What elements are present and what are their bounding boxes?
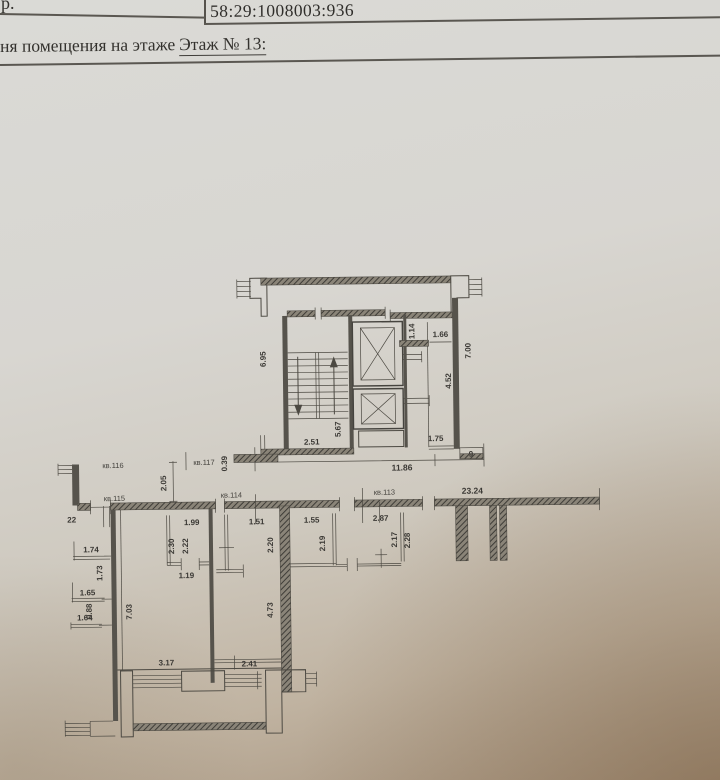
stair-down-arrow [298, 357, 299, 410]
dim-wall-mark: 22 [67, 515, 77, 524]
corridor-top-wall [237, 276, 483, 324]
dim-core-bottom-total: 11.86 [392, 462, 413, 472]
facade-wall: 22 [58, 457, 600, 528]
dim-core-right: 7.00 [464, 342, 473, 358]
dim-h220: 2.20 [266, 537, 275, 553]
balconies [64, 655, 317, 738]
dim-lift-room: 1.66 [433, 330, 449, 339]
floor-plan: 6.95 2.51 5.67 1.14 1.66 7.00 4.52 1.75 … [0, 0, 720, 780]
left-exterior-wall [111, 510, 118, 670]
dim-small-nine: 9 [469, 450, 474, 459]
dim-room-d-w: 2.87 [373, 514, 389, 523]
dim-core-bottom-right: 1.75 [428, 434, 444, 443]
dim-total-width: 23.24 [462, 486, 484, 496]
dim-bottom241: 2.41 [242, 659, 258, 668]
shaft-service-box [359, 430, 404, 447]
document-page: р. 58:29:1008003:936 ня помещения на эта… [0, 0, 720, 780]
dim-bay165: 1.65 [80, 588, 96, 597]
balcony-bottom-wall [133, 722, 266, 731]
label-kv114: кв.114 [221, 490, 242, 499]
dim-w119: 1.19 [179, 571, 195, 580]
dim-bottom317: 3.17 [159, 658, 175, 667]
dim-room-c-w: 1.55 [304, 516, 320, 525]
dim-gap: 2.05 [159, 475, 168, 491]
elevator-shaft-lower [353, 388, 429, 429]
dim-h230: 2.30 [167, 538, 176, 554]
apartment-walls: 1.99 1.51 1.55 2.87 2.30 2.22 2.20 2.19 … [63, 503, 510, 737]
dim-stair-depth: 5.67 [333, 421, 342, 437]
dim-stair-side: 6.95 [259, 351, 268, 367]
stair-up-arrow [334, 362, 335, 414]
label-kv117: кв.117 [193, 458, 214, 467]
dim-stair-width: 2.51 [304, 437, 320, 446]
stair-core: 6.95 2.51 5.67 1.14 1.66 7.00 4.52 1.75 … [167, 276, 485, 503]
dim-h217: 2.17 [390, 531, 399, 547]
dim-bay174: 1.74 [83, 545, 99, 554]
dim-room-a-w: 1.99 [184, 518, 200, 527]
dim-bay173: 1.73 [95, 565, 104, 581]
thick-cross-wall [280, 506, 292, 692]
dim-h219: 2.19 [318, 535, 327, 551]
balcony-left-pier [121, 671, 134, 737]
dim-depth703: 7.03 [125, 603, 134, 619]
room-partitions [167, 503, 509, 693]
dim-depth473: 4.73 [266, 602, 275, 618]
label-kv116: кв.116 [102, 461, 123, 470]
dim-h228: 2.28 [403, 532, 412, 548]
dim-bay164: 1.64 [77, 613, 93, 622]
dim-lift-niche: 1.14 [407, 323, 416, 339]
dim-core-inner: 4.52 [444, 373, 453, 389]
label-kv115: кв.115 [104, 494, 125, 503]
dim-niche: 0.39 [220, 455, 229, 471]
dim-room-b-w: 1.51 [249, 517, 265, 526]
label-kv113: кв.113 [374, 488, 395, 497]
dim-h222: 2.22 [181, 538, 190, 554]
